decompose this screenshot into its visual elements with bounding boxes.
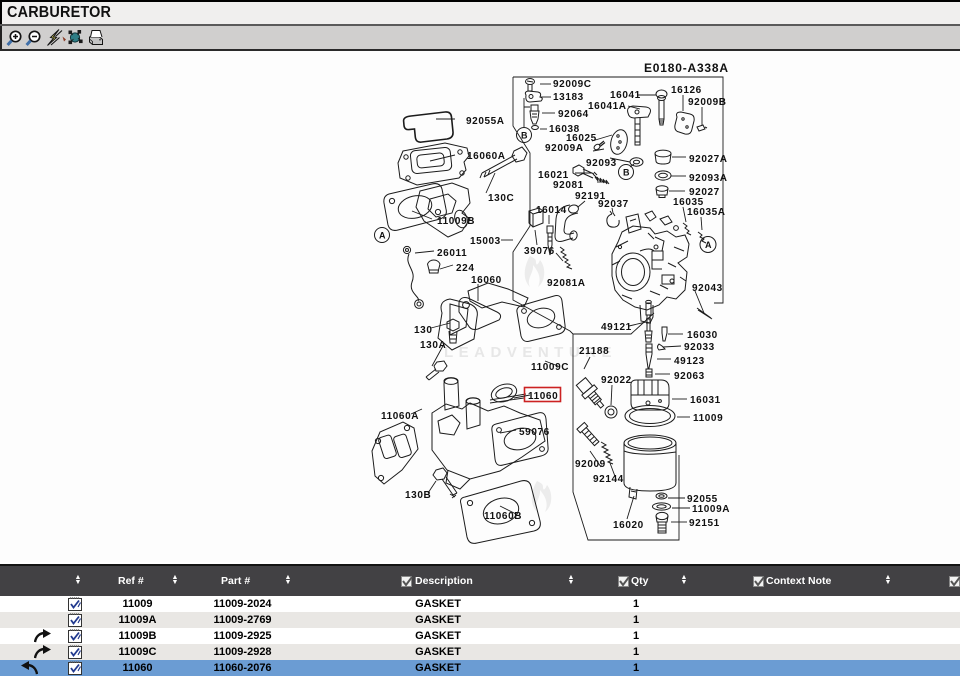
svg-text:92093: 92093 [586, 158, 617, 169]
svg-text:130B: 130B [405, 490, 431, 501]
svg-text:92009: 92009 [575, 459, 606, 470]
svg-text:16035A: 16035A [687, 207, 726, 218]
svg-text:11060A: 11060A [381, 411, 419, 422]
svg-text:92064: 92064 [558, 109, 589, 120]
svg-text:11060: 11060 [528, 391, 558, 402]
svg-text:13183: 13183 [553, 92, 584, 103]
svg-text:A: A [705, 240, 712, 250]
svg-text:92009A: 92009A [545, 143, 584, 154]
svg-text:92144: 92144 [593, 474, 624, 485]
svg-text:11009A: 11009A [692, 504, 730, 515]
svg-text:11060B: 11060B [484, 511, 522, 522]
svg-text:B: B [623, 168, 630, 178]
svg-text:92081: 92081 [553, 180, 584, 191]
svg-text:16030: 16030 [687, 330, 718, 341]
svg-text:16060A: 16060A [467, 151, 506, 162]
svg-text:16060: 16060 [471, 275, 502, 286]
svg-text:16031: 16031 [690, 395, 721, 406]
svg-text:92151: 92151 [689, 518, 720, 529]
svg-text:130C: 130C [488, 193, 514, 204]
svg-text:11009C: 11009C [531, 362, 569, 373]
svg-text:49121: 49121 [601, 322, 632, 333]
svg-text:92055A: 92055A [466, 116, 505, 127]
svg-text:16126: 16126 [671, 85, 702, 96]
svg-text:16041A: 16041A [588, 101, 627, 112]
svg-text:92009C: 92009C [553, 79, 592, 90]
svg-text:92037: 92037 [598, 199, 629, 210]
svg-text:21188: 21188 [579, 346, 609, 357]
svg-text:224: 224 [456, 263, 475, 274]
svg-text:16041: 16041 [610, 90, 641, 101]
svg-text:26011: 26011 [437, 248, 467, 259]
svg-text:130: 130 [414, 325, 433, 336]
svg-text:11009: 11009 [693, 413, 723, 424]
svg-text:E0180-A338A: E0180-A338A [644, 61, 729, 75]
svg-text:92033: 92033 [684, 342, 715, 353]
svg-text:16014: 16014 [536, 205, 567, 216]
svg-text:92093A: 92093A [689, 173, 728, 184]
svg-text:A: A [379, 231, 386, 241]
svg-text:92081A: 92081A [547, 278, 586, 289]
svg-text:92063: 92063 [674, 371, 705, 382]
svg-text:92022: 92022 [601, 375, 632, 386]
svg-text:15003: 15003 [470, 236, 501, 247]
svg-text:16020: 16020 [613, 520, 644, 531]
svg-text:B: B [521, 131, 528, 141]
svg-text:92009B: 92009B [688, 97, 727, 108]
svg-text:92043: 92043 [692, 283, 723, 294]
svg-text:49123: 49123 [674, 356, 705, 367]
svg-text:92027A: 92027A [689, 154, 728, 165]
